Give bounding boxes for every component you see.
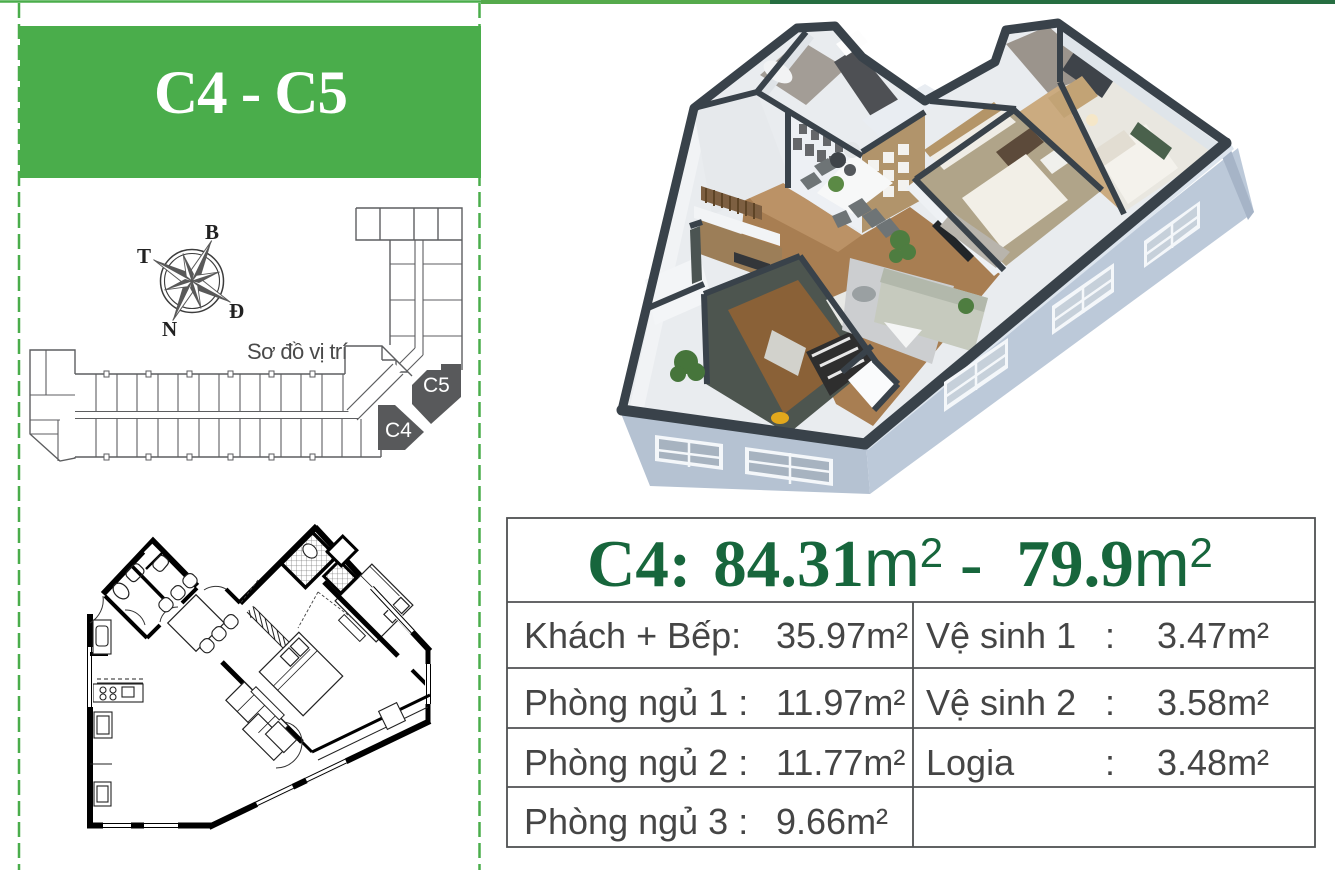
svg-text:C5: C5 [423, 374, 450, 397]
svg-text:C4: C4 [385, 419, 412, 442]
